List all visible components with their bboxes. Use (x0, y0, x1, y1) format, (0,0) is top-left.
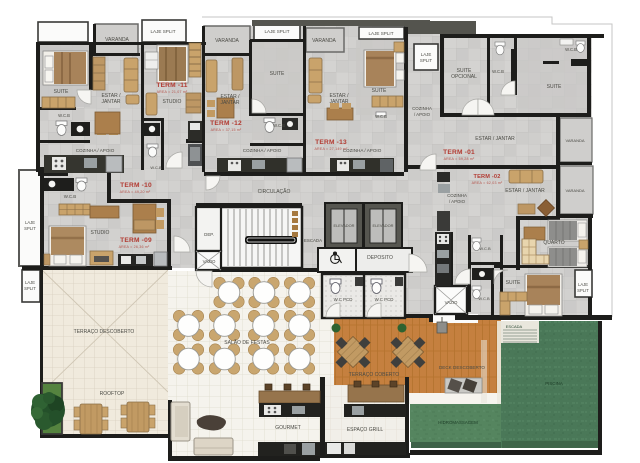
svg-text:JANTAR: JANTAR (101, 99, 120, 105)
svg-text:VAZIO: VAZIO (203, 259, 216, 264)
svg-text:COZINHA: COZINHA (412, 106, 432, 111)
svg-text:QUARTO: QUARTO (543, 240, 564, 246)
svg-text:SPLIT: SPLIT (577, 288, 589, 293)
svg-text:SALÃO DE FESTAS: SALÃO DE FESTAS (224, 339, 270, 346)
svg-text:SUITE: SUITE (506, 280, 521, 286)
svg-text:VARANDA: VARANDA (215, 38, 239, 44)
svg-text:COZINHA / APOIO: COZINHA / APOIO (243, 148, 282, 153)
svg-text:DECK DESCOBERTO: DECK DESCOBERTO (439, 365, 485, 370)
svg-text:TERM -09: TERM -09 (120, 237, 152, 244)
svg-text:HIDROMASSAGEM: HIDROMASSAGEM (438, 420, 478, 425)
svg-text:AREA = 62,03 m²: AREA = 62,03 m² (472, 181, 503, 185)
svg-text:TERM -01: TERM -01 (443, 149, 475, 156)
svg-text:TERM -12: TERM -12 (210, 120, 242, 127)
svg-text:W.C.B: W.C.B (478, 296, 490, 301)
svg-text:W.C PCD: W.C PCD (334, 297, 353, 302)
svg-text:PISCINA: PISCINA (545, 381, 563, 386)
svg-text:W.C.B: W.C.B (58, 113, 70, 118)
svg-text:ESTAR / JANTAR: ESTAR / JANTAR (475, 136, 515, 142)
svg-text:W.C PCD: W.C PCD (375, 297, 394, 302)
svg-text:/ APOIO: / APOIO (414, 112, 431, 117)
svg-text:SUITE: SUITE (372, 88, 387, 94)
svg-text:SUITE: SUITE (270, 71, 285, 77)
svg-text:TERM -11: TERM -11 (156, 82, 187, 89)
svg-text:W.C.B: W.C.B (565, 47, 577, 52)
svg-text:LAJE SPLIT: LAJE SPLIT (264, 29, 289, 34)
svg-text:CIRCULAÇÃO: CIRCULAÇÃO (258, 188, 291, 195)
svg-text:ELEVADOR: ELEVADOR (373, 223, 394, 228)
svg-text:W.C.B: W.C.B (150, 165, 162, 170)
svg-text:SUITE: SUITE (54, 89, 69, 95)
svg-text:TERM -10: TERM -10 (120, 182, 152, 189)
svg-text:LAJE SPLIT: LAJE SPLIT (150, 29, 175, 34)
svg-text:W.C.B: W.C.B (479, 246, 491, 251)
svg-text:LAJE: LAJE (578, 282, 588, 287)
svg-text:VAZIO: VAZIO (445, 300, 458, 305)
svg-text:DEPOSITO: DEPOSITO (367, 255, 393, 261)
svg-text:COZINHA / APOIO: COZINHA / APOIO (76, 148, 115, 153)
svg-text:SPLIT: SPLIT (24, 226, 36, 231)
svg-text:/ APOIO: / APOIO (449, 199, 466, 204)
svg-text:GOURMET: GOURMET (275, 425, 301, 431)
svg-text:VARANDA: VARANDA (565, 188, 584, 193)
svg-text:ESCADA: ESCADA (506, 324, 523, 329)
svg-text:STUDIO: STUDIO (91, 230, 110, 236)
svg-text:AREA = 21,07 m²: AREA = 21,07 m² (157, 90, 188, 94)
svg-text:TERM -13: TERM -13 (315, 139, 347, 146)
svg-text:SPLIT: SPLIT (420, 58, 433, 63)
svg-text:DEP.: DEP. (204, 232, 214, 237)
svg-text:ESPAÇO GRILL: ESPAÇO GRILL (347, 427, 384, 433)
svg-text:LAJE SPLIT: LAJE SPLIT (368, 31, 393, 36)
svg-text:TERRAÇO COBERTO: TERRAÇO COBERTO (349, 372, 399, 378)
svg-text:ESTAR / JANTAR: ESTAR / JANTAR (505, 188, 545, 194)
svg-text:AREA = 49,20 m²: AREA = 49,20 m² (120, 190, 151, 194)
svg-text:ROOFTOP: ROOFTOP (100, 391, 125, 397)
svg-text:SUITE: SUITE (547, 84, 562, 90)
svg-text:TERRAÇO DESCOBERTO: TERRAÇO DESCOBERTO (74, 329, 135, 335)
svg-text:JANTAR: JANTAR (329, 99, 348, 105)
svg-text:STUDIO: STUDIO (163, 99, 182, 105)
svg-text:ESCADA: ESCADA (304, 238, 322, 243)
svg-text:AREA = 27,149 m²: AREA = 27,149 m² (314, 147, 348, 151)
svg-text:COZINHA / APOIO: COZINHA / APOIO (343, 148, 382, 153)
svg-text:W.C.B: W.C.B (273, 123, 285, 128)
svg-text:VARANDA: VARANDA (312, 38, 336, 44)
svg-text:AREA = 59,28 m²: AREA = 59,28 m² (444, 157, 475, 161)
svg-text:LAJE: LAJE (421, 52, 432, 57)
svg-text:AREA = 37,15 m²: AREA = 37,15 m² (211, 128, 242, 132)
svg-text:COZINHA: COZINHA (447, 193, 467, 198)
svg-text:W.C.B: W.C.B (64, 194, 77, 199)
svg-text:VARANDA: VARANDA (565, 138, 584, 143)
svg-text:LAJE: LAJE (25, 280, 35, 285)
svg-text:VARANDA: VARANDA (105, 37, 129, 43)
svg-text:AREA = 26,36 m²: AREA = 26,36 m² (119, 245, 150, 249)
svg-text:JANTAR: JANTAR (220, 100, 239, 106)
svg-text:ELEVADOR: ELEVADOR (334, 223, 355, 228)
svg-text:TERM -02: TERM -02 (473, 174, 500, 180)
svg-text:LAJE: LAJE (25, 220, 35, 225)
svg-text:SPLIT: SPLIT (24, 286, 36, 291)
svg-text:W.C.B: W.C.B (375, 114, 387, 119)
svg-text:W.C.B: W.C.B (492, 69, 504, 74)
svg-text:OPCIONAL: OPCIONAL (451, 74, 477, 80)
